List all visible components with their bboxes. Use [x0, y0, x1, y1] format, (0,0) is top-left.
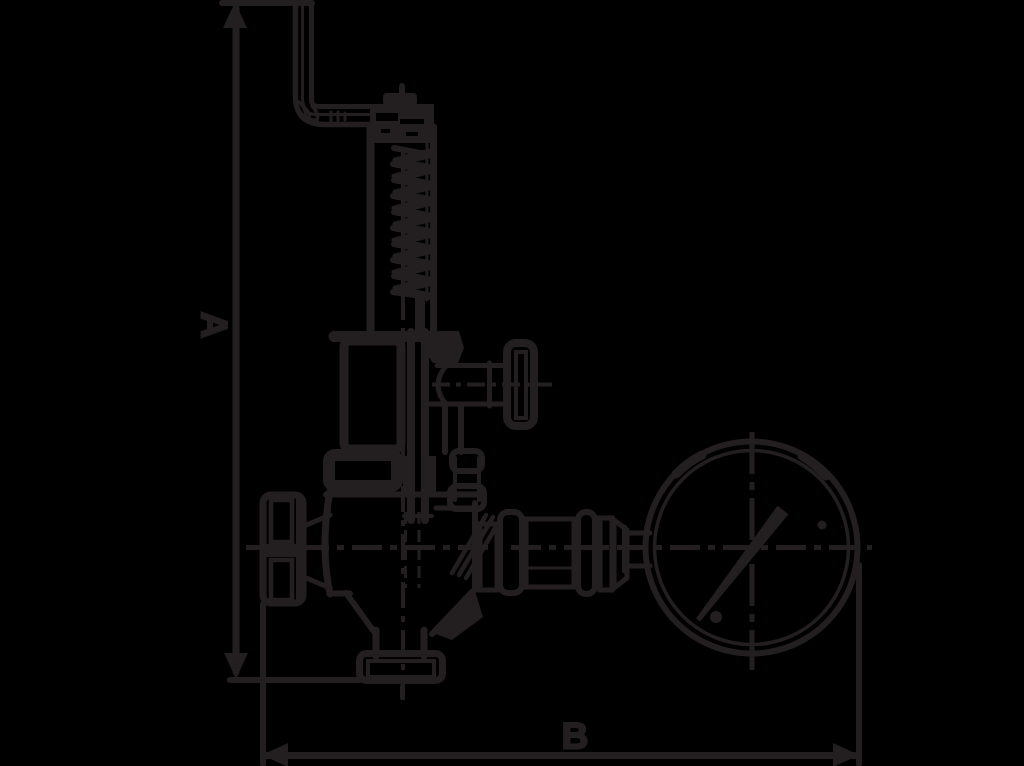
svg-text:A: A	[194, 312, 235, 339]
svg-text:B: B	[562, 716, 589, 757]
